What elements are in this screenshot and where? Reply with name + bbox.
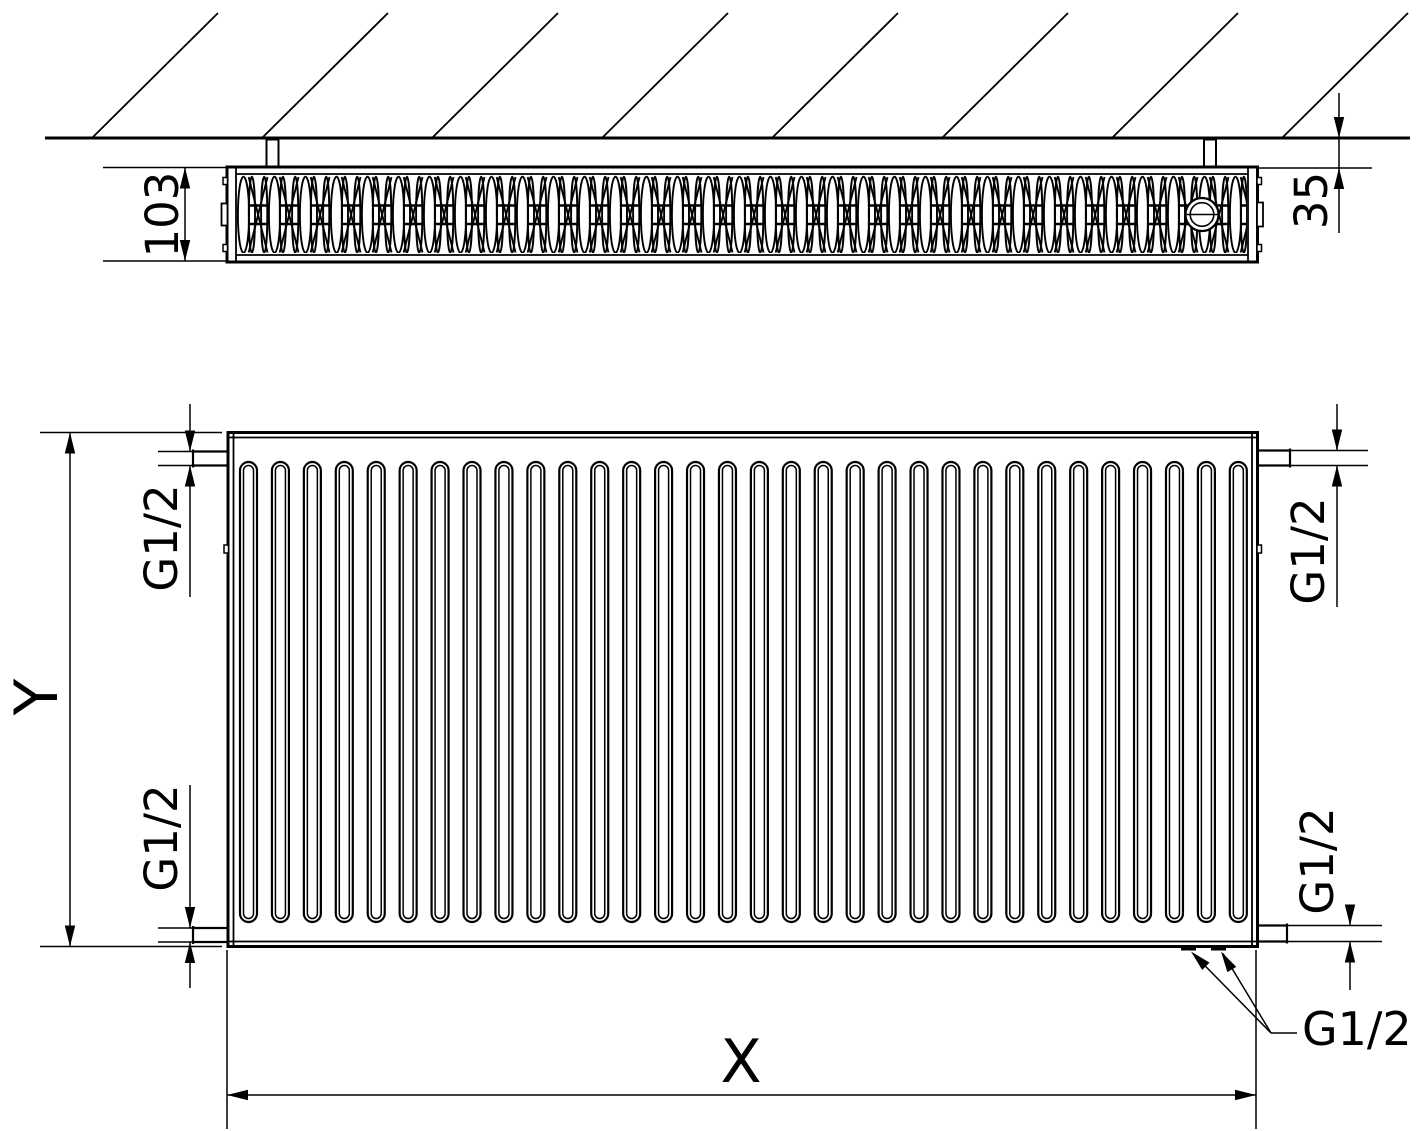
- dimension-arrowhead: [1235, 1090, 1256, 1100]
- dim-g12-top-right-label: G1/2: [1282, 497, 1335, 604]
- leader-arrowhead: [1217, 949, 1237, 972]
- wall-hatch-line: [263, 13, 388, 137]
- end-plate-tab: [223, 245, 228, 252]
- side-connection-right: [1257, 203, 1263, 227]
- connection-stub-bottom-right: [1258, 924, 1383, 944]
- side-connection-left: [222, 204, 228, 226]
- connection-stub-top-left: [158, 450, 228, 468]
- height-dimension-label: Y: [2, 678, 72, 716]
- dimension-arrowhead: [1332, 466, 1342, 487]
- connection-stub-top-right: [1258, 449, 1369, 468]
- wall-hatch-line: [773, 13, 898, 137]
- dimension-arrowhead: [1345, 942, 1355, 963]
- width-dimension-label: X: [720, 1027, 761, 1097]
- dim-g12-bottom-right: G1/2: [1291, 807, 1355, 990]
- wall-hatch-line: [1113, 13, 1238, 137]
- dim-g12-top-right: G1/2: [1282, 404, 1342, 607]
- connection-stub-bottom-left: [158, 926, 228, 944]
- dimension-arrowhead: [185, 942, 195, 963]
- end-plate-clip-right: [1257, 545, 1262, 553]
- depth-dimension-label: 103: [136, 172, 189, 258]
- wall-hatch-line: [433, 13, 558, 137]
- radiator-technical-drawing: 10335G1/2G1/2G1/2G1/2YXG1/2: [0, 0, 1425, 1131]
- g12-callout-label: G1/2: [1302, 1002, 1412, 1056]
- mounting-brackets: [267, 140, 1217, 168]
- wall-hatch-line: [1283, 13, 1408, 137]
- front-view-radiator: [224, 433, 1262, 949]
- dimension-arrowhead: [185, 907, 195, 928]
- dimension-arrowhead: [1345, 905, 1355, 926]
- end-plate-tab: [1257, 245, 1262, 252]
- wall-hatch-line: [603, 13, 728, 137]
- dimension-wall-distance: 35: [1258, 93, 1372, 233]
- wall-hatch-line: [93, 13, 218, 137]
- wall-hatch-line: [943, 13, 1068, 137]
- dimension-arrowhead: [1334, 117, 1344, 138]
- wall-distance-label: 35: [1285, 172, 1338, 229]
- dimension-arrowhead: [65, 926, 75, 947]
- dimension-arrowhead: [1332, 430, 1342, 451]
- wall-section: [45, 13, 1410, 138]
- dimension-arrowhead: [185, 431, 195, 452]
- end-plate-tab: [1257, 178, 1262, 185]
- dim-g12-bottom-right-label: G1/2: [1291, 807, 1344, 914]
- dimension-width: X: [227, 950, 1256, 1129]
- dimension-depth: 103: [103, 168, 226, 262]
- dim-g12-bottom-left: G1/2: [135, 784, 195, 988]
- dimension-arrowhead: [65, 433, 75, 454]
- mounting-bracket-left: [267, 140, 279, 168]
- dim-g12-top-left-label: G1/2: [135, 484, 188, 591]
- end-plate-clip-left: [224, 545, 229, 553]
- end-plate-tab: [223, 178, 228, 185]
- dimension-arrowhead: [185, 466, 195, 487]
- dim-g12-bottom-left-label: G1/2: [135, 784, 188, 891]
- dimension-height: Y: [2, 433, 222, 947]
- g12-bottom-callout: G1/2: [1187, 948, 1411, 1056]
- mounting-bracket-right: [1204, 140, 1216, 168]
- top-view-radiator: [222, 167, 1264, 262]
- dimension-arrowhead: [227, 1090, 248, 1100]
